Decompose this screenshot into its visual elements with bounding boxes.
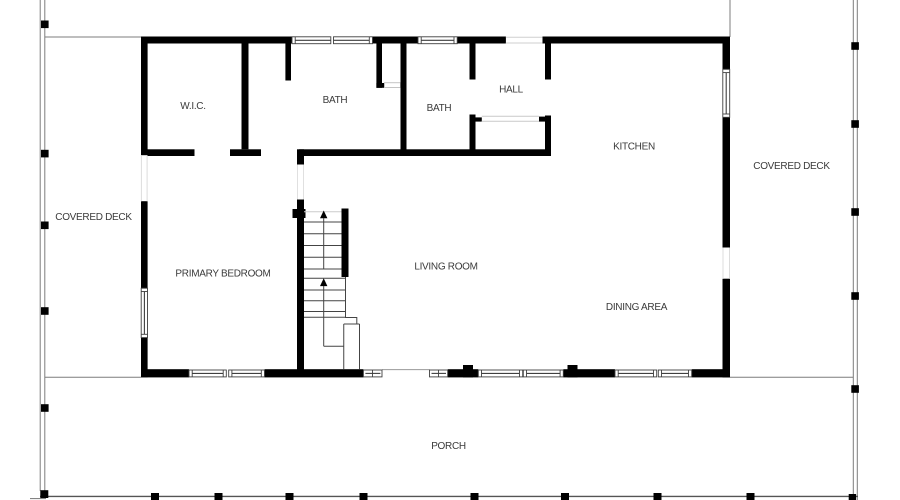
svg-text:COVERED DECK: COVERED DECK	[55, 212, 132, 223]
svg-text:COVERED DECK: COVERED DECK	[753, 161, 830, 172]
svg-text:PORCH: PORCH	[431, 441, 466, 452]
svg-text:LIVING ROOM: LIVING ROOM	[414, 262, 477, 273]
svg-text:HALL: HALL	[499, 85, 524, 96]
svg-text:KITCHEN: KITCHEN	[613, 142, 655, 153]
svg-text:DINING AREA: DINING AREA	[606, 302, 668, 313]
svg-text:BATH: BATH	[323, 95, 348, 106]
svg-text:PRIMARY BEDROOM: PRIMARY BEDROOM	[175, 269, 270, 280]
svg-text:BATH: BATH	[427, 103, 452, 114]
svg-text:W.I.C.: W.I.C.	[180, 101, 205, 112]
